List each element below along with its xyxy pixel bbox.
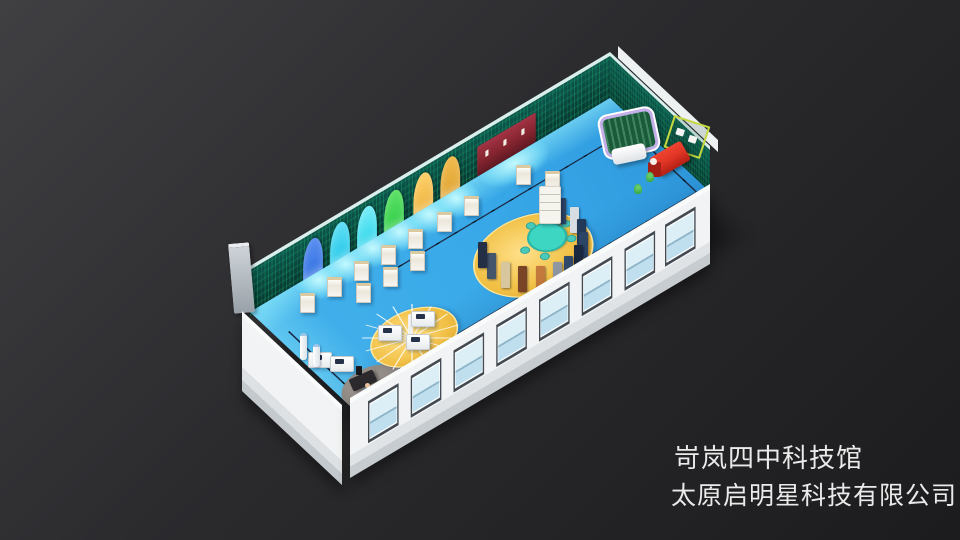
exhibit-pedestal	[381, 245, 396, 265]
curved-wall-panel	[487, 253, 496, 279]
curved-wall-panel	[518, 266, 527, 292]
exhibit-pedestal	[383, 267, 398, 287]
shelf-row	[540, 187, 560, 195]
window	[665, 207, 696, 267]
window	[496, 307, 527, 367]
window	[582, 256, 613, 316]
exhibit-pedestal	[300, 293, 315, 313]
corner-display-panel	[228, 242, 255, 314]
machine-carriage	[688, 135, 698, 144]
curved-wall-panel	[501, 262, 510, 288]
exhibit-pedestal	[408, 229, 423, 249]
exhibit-pedestal	[354, 261, 369, 281]
exhibit-pedestal	[464, 196, 479, 216]
exhibit-pedestal	[437, 212, 452, 232]
student-desk	[308, 352, 332, 368]
student-desk	[406, 334, 430, 350]
student-desk	[330, 356, 354, 372]
shelf-row	[540, 203, 560, 211]
cylinder-exhibit	[300, 333, 307, 360]
window	[368, 383, 399, 443]
plant	[634, 184, 642, 194]
display-shelf	[539, 186, 561, 224]
window	[454, 332, 485, 392]
student-desk	[411, 311, 435, 327]
exhibit-pedestal	[410, 251, 425, 271]
presentation-slide: { "caption": { "line1": "岢岚四中科技馆", "line…	[0, 0, 960, 540]
cylinder-exhibit	[313, 344, 320, 367]
machine-cap	[650, 158, 657, 165]
company-name: 太原启明星科技有限公司	[671, 476, 957, 512]
window	[625, 231, 656, 291]
plant	[646, 172, 654, 182]
window	[411, 358, 442, 418]
reception-monitor	[356, 366, 362, 375]
machine-carriage	[675, 128, 685, 137]
window	[539, 281, 570, 341]
curved-wall-panel	[478, 242, 487, 268]
shelf-row	[540, 195, 560, 203]
student-desk	[378, 325, 402, 341]
project-title: 岢岚四中科技馆	[674, 438, 863, 475]
exhibit-pedestal	[516, 165, 531, 185]
exhibit-pedestal	[327, 277, 342, 297]
